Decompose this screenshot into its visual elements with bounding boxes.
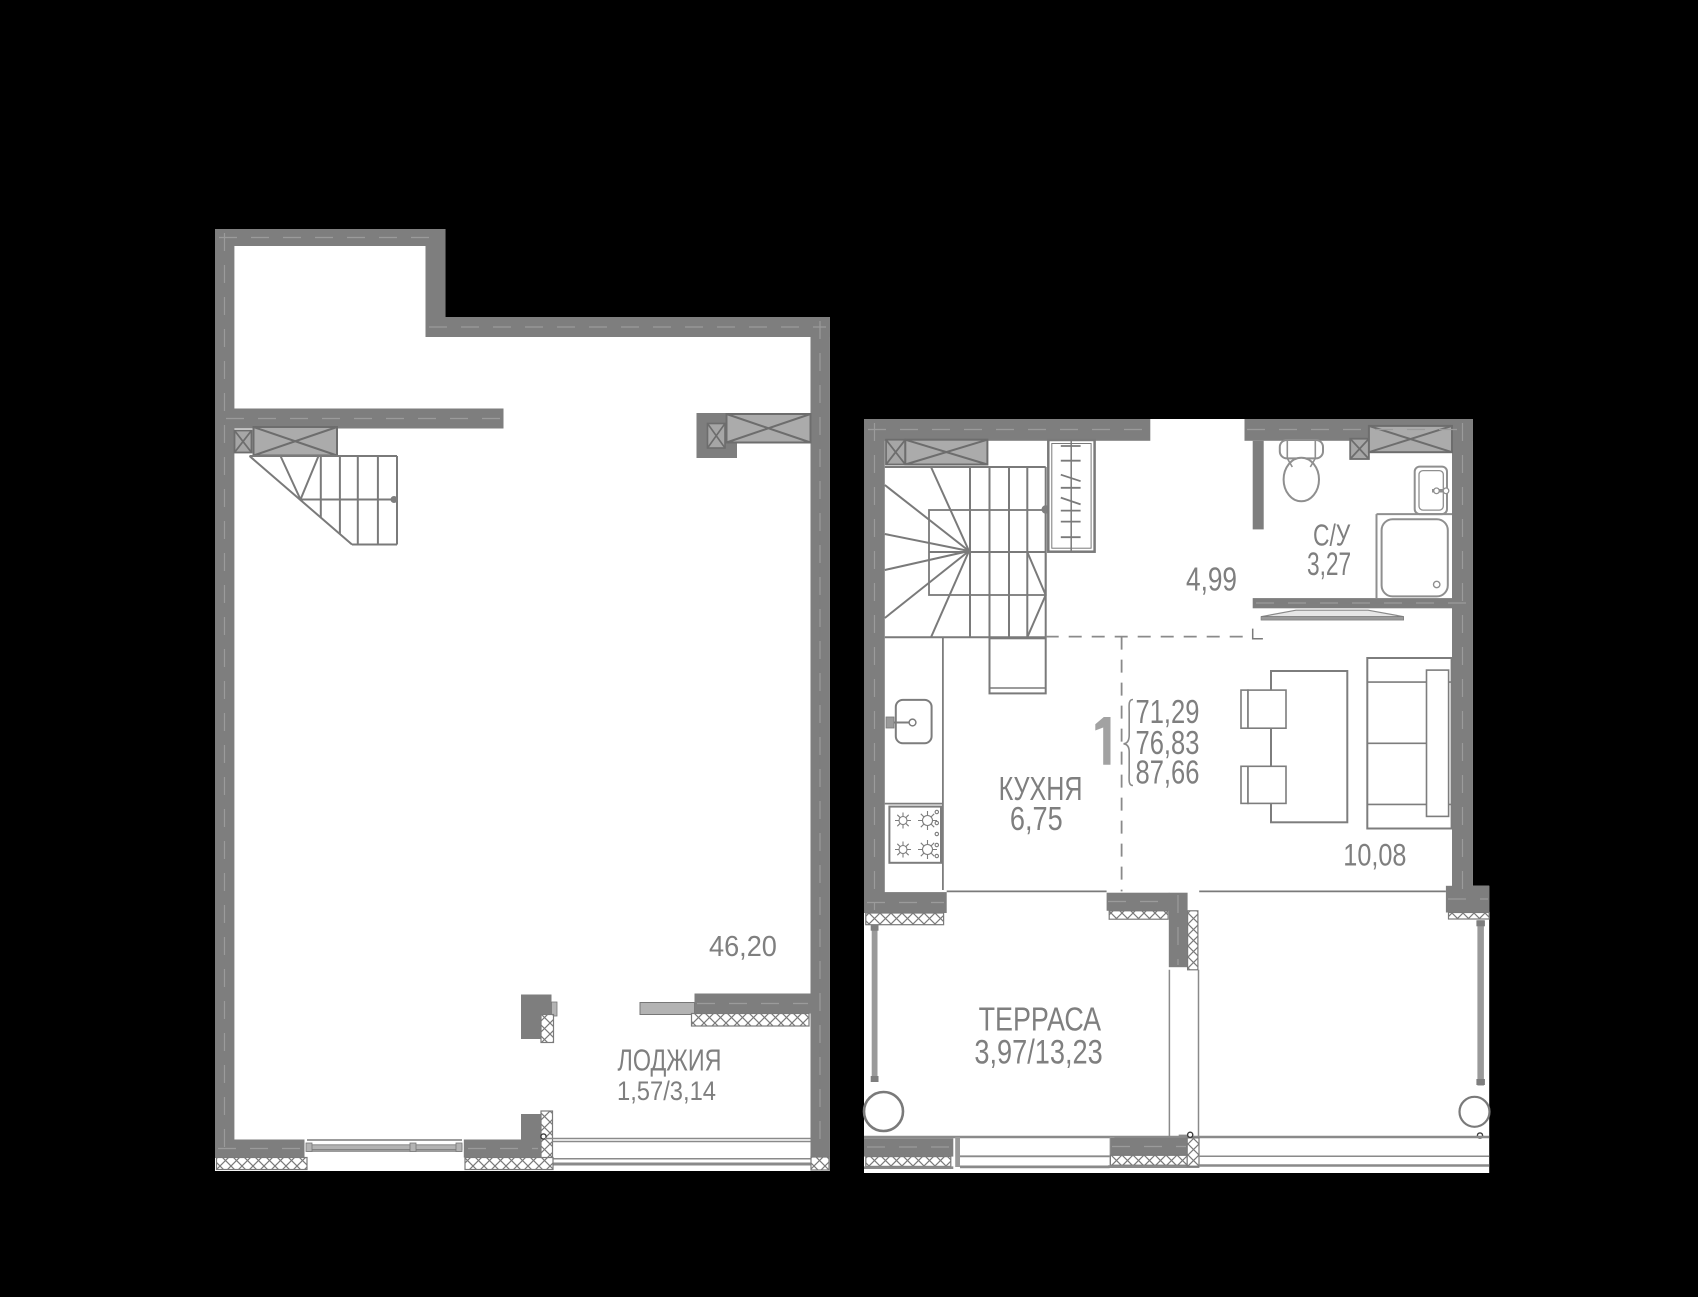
svg-text:ЛОДЖИЯ: ЛОДЖИЯ: [618, 1045, 722, 1078]
svg-text:3,97/13,23: 3,97/13,23: [974, 1033, 1102, 1071]
svg-text:46,20: 46,20: [709, 931, 777, 963]
svg-text:3,27: 3,27: [1307, 545, 1351, 582]
svg-text:10,08: 10,08: [1343, 837, 1406, 873]
svg-text:87,66: 87,66: [1136, 754, 1200, 791]
svg-text:4,99: 4,99: [1186, 561, 1237, 598]
svg-text:6,75: 6,75: [1010, 801, 1063, 838]
svg-text:1,57/3,14: 1,57/3,14: [617, 1076, 716, 1106]
